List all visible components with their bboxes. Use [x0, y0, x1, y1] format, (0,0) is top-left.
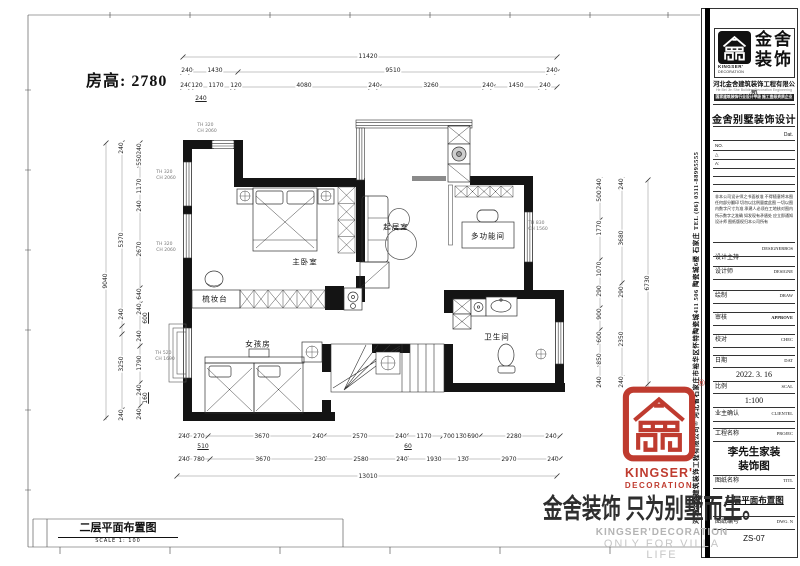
corridor-cabinet [344, 288, 362, 310]
dimension-label: 290 [597, 284, 603, 297]
kingser-logo-icon [718, 31, 751, 64]
disclaimer-note: 非本公司设计师之书面核准 不得随意将本图任何部分翻印 切勿以比例量度此图 一切以… [715, 194, 793, 225]
drawing-sheet: 房高: 2780 1142024014309510240240120117012… [0, 0, 800, 566]
field-cn: 业主确认 [715, 411, 739, 417]
room-label: 主卧室 [292, 258, 318, 266]
window-size-label: TH 830 CH 1560 [528, 221, 547, 233]
dimension-label: 13010 [357, 474, 378, 480]
field-cn: 日期 [715, 358, 727, 364]
dimension-label: 2280 [505, 434, 522, 440]
dimension-label: 240 [538, 83, 551, 89]
field-cn: 设计师 [715, 269, 733, 275]
dimension-label: 240 [137, 407, 143, 420]
certification-line: 国家建筑装饰行业设计甲级 施工壹级资质企业 [714, 94, 794, 101]
dimension-label: 240 [395, 457, 408, 463]
logo-box: KINGSER' DECORATION 金舍 装饰 [714, 28, 795, 78]
field-cn: 工程名称 [715, 431, 739, 437]
dimension-label: 2570 [351, 434, 368, 440]
dimension-label: 230 [313, 457, 326, 463]
field-en: SCAL [781, 385, 793, 390]
dimension-label: 11420 [357, 54, 378, 60]
dimension-label: 3680 [619, 229, 625, 246]
logo-cn-line2: 装饰 [755, 50, 793, 70]
dimension-label: 240 [119, 307, 125, 320]
kingser-logo-icon [622, 386, 696, 462]
glass-partition [449, 185, 453, 245]
triangle-icon: △ [715, 152, 718, 158]
title-block: KINGSER' DECORATION 金舍 装饰 河北金舍建筑装饰工程有限公司… [712, 8, 796, 558]
logo-decoration-text: DECORATION [718, 71, 744, 75]
dimension-label: 290 [619, 285, 625, 298]
dimension-label: 270 [192, 434, 205, 440]
dimension-label: 600 [597, 330, 603, 343]
sheet-scale: SCALE 1: 100 [58, 539, 178, 544]
field-en: DWG. N [777, 520, 793, 525]
field-value-date: 2022. 3. 16 [712, 370, 796, 379]
field-en: PROJEC [777, 432, 793, 437]
dimension-label: 510 [196, 444, 209, 450]
dimension-label: 1770 [597, 219, 603, 236]
dimension-label: 1790 [137, 354, 143, 371]
window-size-label: TH 320 CH 2060 [197, 123, 216, 135]
dimension-label: 240 [619, 177, 625, 190]
desk [462, 210, 514, 248]
dimension-label: 240 [597, 375, 603, 388]
stamp-kingser-text: KINGSER' [620, 467, 698, 481]
dimension-label: 240 [311, 434, 324, 440]
dimension-label: 160 [143, 391, 149, 404]
dimension-label: 9040 [103, 272, 109, 289]
room-label: 多功能间 [471, 232, 505, 240]
dimension-label: 3260 [422, 83, 439, 89]
dimension-label: 240 [119, 408, 125, 421]
dimension-label: 2970 [500, 457, 517, 463]
dimension-label: 780 [192, 457, 205, 463]
field-en: DAT [784, 359, 793, 364]
dimension-label: 240 [119, 141, 125, 154]
titleblock-inner-line [701, 8, 702, 558]
master-bed [237, 188, 334, 251]
field-en: APPROVE [771, 316, 793, 321]
dimension-label: 2350 [619, 330, 625, 347]
registered-mark-icon: ® [697, 380, 706, 389]
room-label: 女孩房 [245, 340, 271, 348]
dimension-label: 1170 [137, 177, 143, 194]
dimension-label: 240 [137, 199, 143, 212]
room-label: 卫生间 [484, 333, 510, 341]
girl-beds [205, 342, 322, 413]
room-height-note: 房高: 2780 [86, 74, 167, 90]
dimension-label: 2580 [352, 457, 369, 463]
dimension-label: 240 [137, 329, 143, 342]
dimension-label: 120 [190, 83, 203, 89]
dimension-label: 240 [194, 96, 207, 102]
window-size-label: TH 320 CH 2060 [156, 242, 175, 254]
stamp-decoration-text: DECORATION [620, 481, 698, 491]
window-size-label: TH 520 CH 1690 [155, 351, 174, 363]
titleblock-divider [705, 8, 710, 558]
balcony-cabinet [448, 126, 470, 182]
no-label: NO. [715, 143, 723, 148]
dimension-label: 240 [546, 457, 559, 463]
dimension-label: 3670 [254, 457, 271, 463]
dimension-label: 3670 [253, 434, 270, 440]
logo-cn-text: 金舍 装饰 [755, 30, 793, 69]
dimension-label: 240 [177, 434, 190, 440]
dimension-label: 690 [466, 434, 479, 440]
dimension-label: 240 [177, 457, 190, 463]
window-size-label: TH 320 CH 2060 [156, 170, 175, 182]
field-cn: 审核 [715, 315, 727, 321]
dimension-label: 9510 [384, 68, 401, 74]
field-cn: 比例 [715, 384, 727, 390]
dimension-label: 1070 [597, 260, 603, 277]
dimension-label: 5370 [119, 231, 125, 248]
dimension-label: 1170 [415, 434, 432, 440]
dimension-label: 600 [143, 311, 149, 324]
dimension-label: 1930 [425, 457, 442, 463]
watermark-en-1: KINGSER'DECORATION [592, 528, 732, 538]
product-title: 金舍别墅装饰设计 [712, 111, 796, 126]
field-value-project: 李先生家装 装饰图 [712, 446, 796, 474]
sheet-title: 二层平面布置图 [58, 522, 178, 538]
dimension-label: 130 [456, 457, 469, 463]
field-cn: 校对 [715, 337, 727, 343]
dimension-label: 500 [597, 189, 603, 202]
field-cn: 绘制 [715, 293, 727, 299]
dimension-label: 550 [137, 153, 143, 166]
dimension-label: 240 [367, 83, 380, 89]
field-row: 设计主持 [715, 246, 739, 264]
dimension-label: 240 [545, 68, 558, 74]
watermark-cn: 金舍装饰 只为别墅而生。 [543, 496, 762, 523]
dimension-label: 1450 [507, 83, 524, 89]
titleblock-right-edge [797, 8, 798, 558]
a-label: A: [715, 161, 719, 166]
dimension-label: 900 [597, 307, 603, 320]
date-label: Dat. [784, 132, 793, 138]
field-en: CLIENTEL [772, 412, 794, 417]
door-leaf [412, 176, 446, 181]
watermark-en-2: ONLY FOR VILLA LIFE [592, 539, 732, 561]
dimension-label: 240 [394, 434, 407, 440]
field-cn: 图纸名称 [715, 478, 739, 484]
room-label: 起居室 [383, 223, 409, 231]
dimension-label: 240 [481, 83, 494, 89]
logo-cn-line1: 金舍 [755, 30, 793, 50]
dimension-label: 640 [137, 287, 143, 300]
kingser-stamp: ® KINGSER' DECORATION [620, 386, 698, 490]
field-en: DESIGNE [774, 270, 793, 275]
field-en: TITL [783, 479, 793, 484]
dimension-label: 240 [544, 434, 557, 440]
dimension-label: 1430 [206, 68, 223, 74]
dimension-label: 1170 [207, 83, 224, 89]
dimension-label: 60 [403, 444, 413, 450]
field-en: DRAW [780, 294, 793, 299]
dimension-label: 6730 [645, 274, 651, 291]
logo-kingser-text: KINGSER' [718, 65, 744, 70]
dimension-label: 3250 [119, 355, 125, 372]
dimension-label: 240 [180, 68, 193, 74]
dimension-label: 2670 [137, 240, 143, 257]
field-value-scale: 1:100 [712, 396, 796, 405]
field-en: DESIGNERBOS [762, 247, 793, 252]
room-label: 梳妆台 [202, 295, 228, 303]
dimension-label: 850 [597, 352, 603, 365]
dimension-label: 4080 [295, 83, 312, 89]
dimension-label: 120 [229, 83, 242, 89]
field-en: CHEC [781, 338, 793, 343]
round-table [386, 209, 417, 260]
